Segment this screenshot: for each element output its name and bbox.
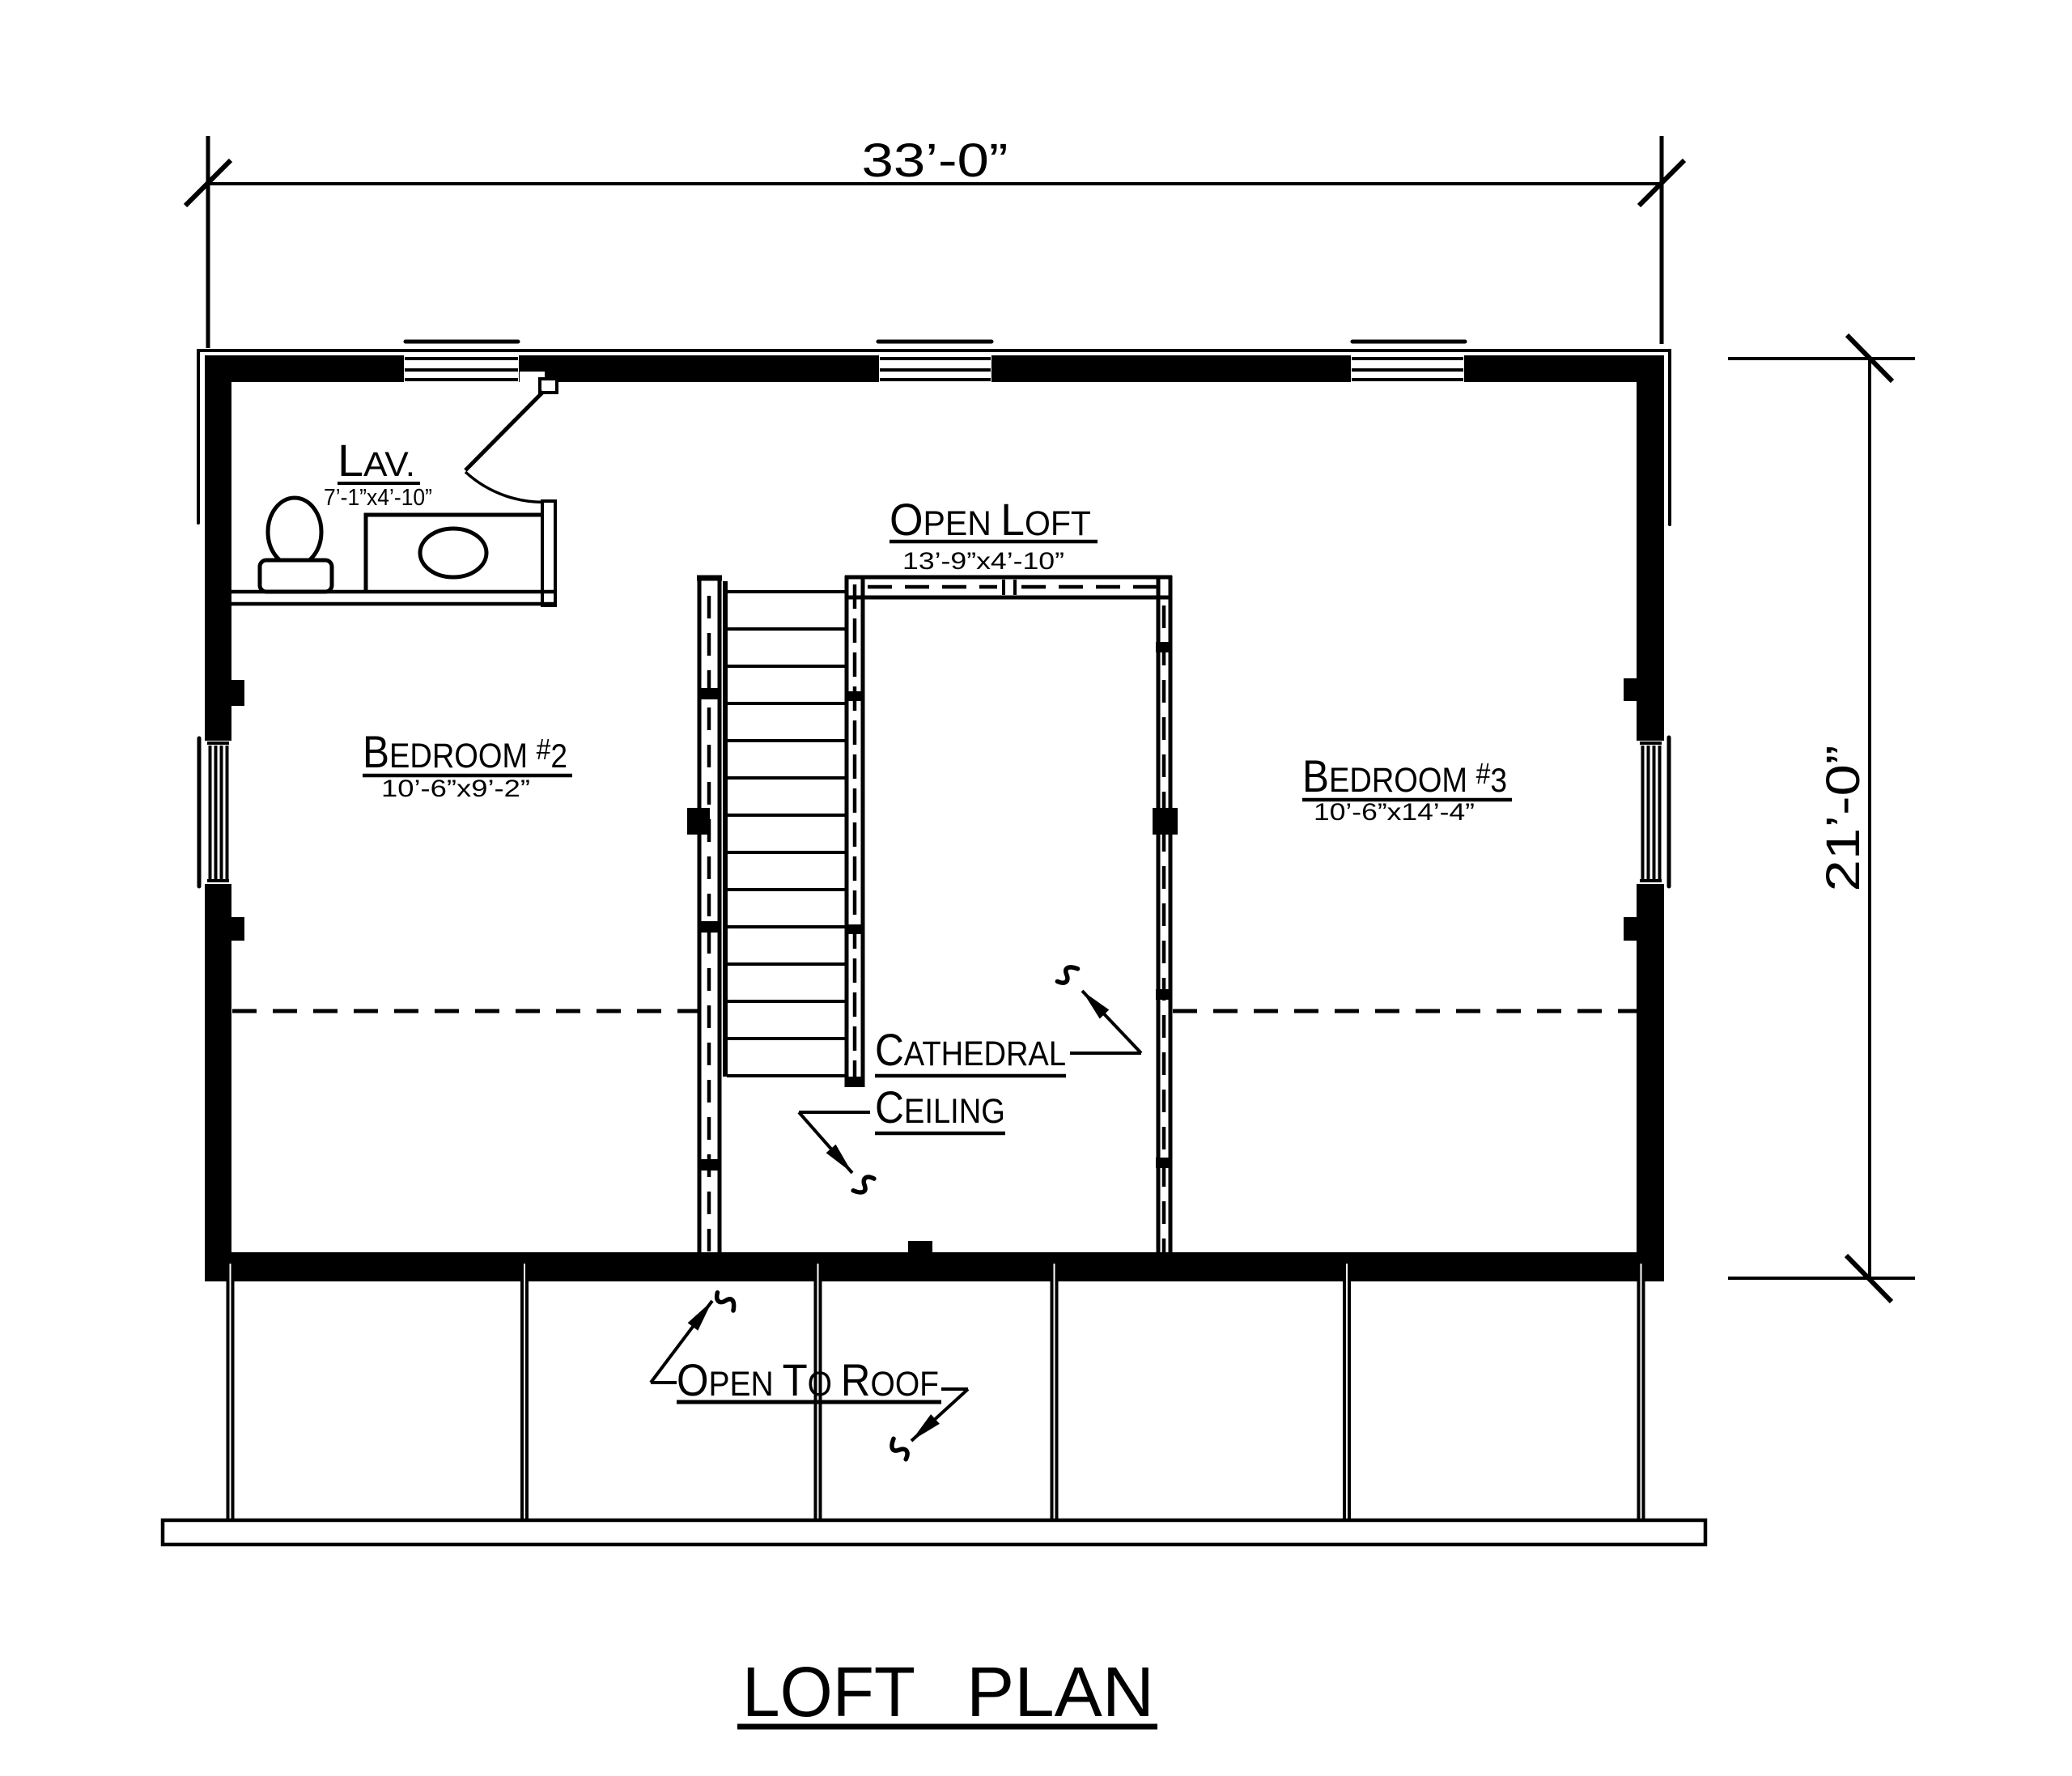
svg-text:LOFT: LOFT: [742, 1653, 915, 1731]
svg-text:21’-0”: 21’-0”: [1817, 746, 1870, 892]
svg-text:33’-0”: 33’-0”: [862, 134, 1008, 187]
svg-text:7’-1”x4’-10”: 7’-1”x4’-10”: [324, 485, 432, 511]
svg-text:10’-6”x9’-2”: 10’-6”x9’-2”: [381, 775, 530, 802]
svg-text:13’-9”x4’-10”: 13’-9”x4’-10”: [902, 548, 1064, 575]
svg-text:PLAN: PLAN: [966, 1653, 1154, 1731]
svg-text:10’-6”x14’-4”: 10’-6”x14’-4”: [1314, 799, 1475, 826]
